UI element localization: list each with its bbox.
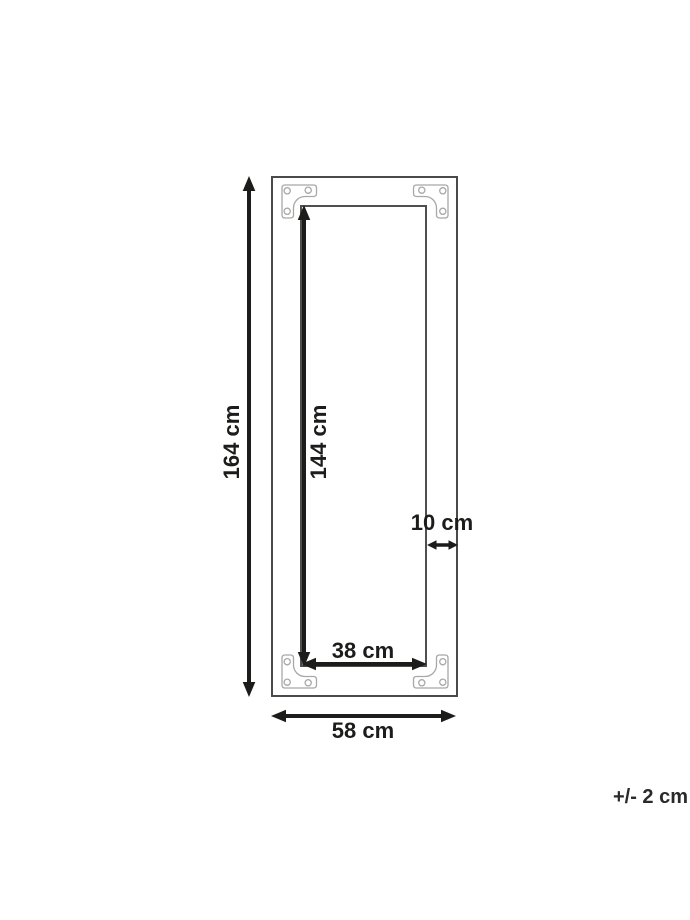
inner-height-label: 144 cm	[306, 397, 332, 487]
tolerance-note: +/- 2 cm	[560, 785, 688, 809]
outer-width-label: 58 cm	[318, 718, 408, 744]
corner-bracket-icon-top-right	[412, 183, 450, 220]
dimension-diagram: 164 cm 144 cm 38 cm 58 cm 10 cm +/- 2 cm	[0, 0, 690, 920]
double-arrow-icon-frame-width	[427, 539, 458, 551]
frame-width-label: 10 cm	[397, 510, 487, 536]
inner-width-label: 38 cm	[318, 638, 408, 664]
outer-height-label: 164 cm	[219, 397, 245, 487]
